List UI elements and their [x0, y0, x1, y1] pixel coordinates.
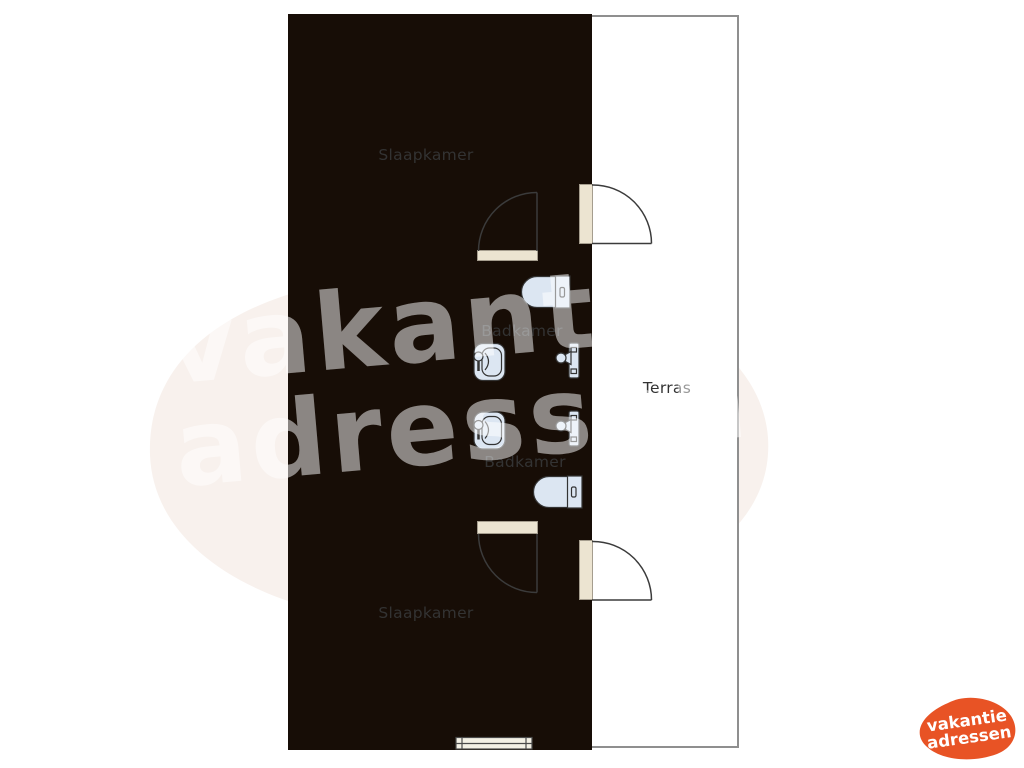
building-walls — [288, 14, 592, 750]
room-label-slaapkamer-1: Slaapkamer — [378, 146, 473, 164]
room-label-terras: Terras — [643, 379, 691, 397]
floorplan-page: { "floorplan": { "rooms": [ {"id": "slaa… — [0, 0, 1024, 768]
room-label-badkamer-1: Badkamer — [481, 322, 563, 340]
door-opening-bedroom1-bathroom1 — [477, 250, 538, 261]
room-label-slaapkamer-2: Slaapkamer — [378, 604, 473, 622]
room-label-badkamer-2: Badkamer — [484, 453, 566, 471]
door-opening-bedroom1-terrace — [579, 184, 593, 244]
door-opening-bathroom2-bedroom2 — [477, 521, 538, 534]
door-opening-bedroom2-terrace — [579, 540, 593, 600]
vakantieadressen-logo: vakantie adressen — [912, 692, 1024, 766]
